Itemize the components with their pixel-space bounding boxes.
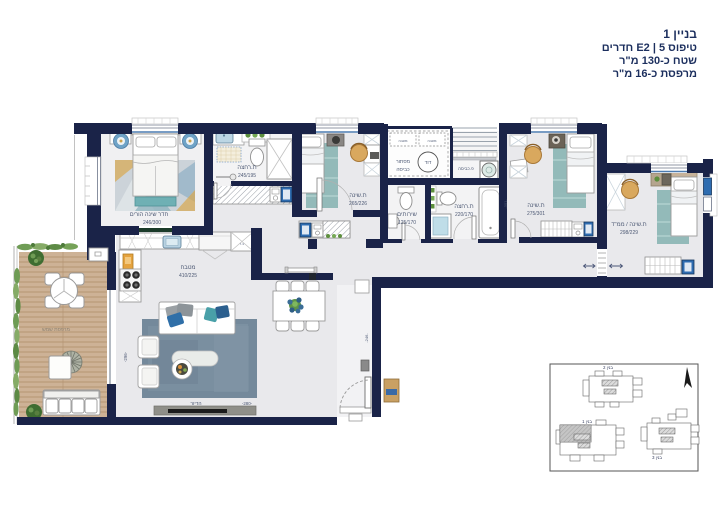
svg-text:טיפוס E2 | 5 חדרים: טיפוס E2 | 5 חדרים [602, 42, 697, 54]
svg-text:חדר שינה הורים: חדר שינה הורים [130, 212, 169, 218]
svg-text:ב.ז: ב.ז [240, 242, 244, 246]
svg-text:246/300: 246/300 [143, 220, 161, 226]
svg-text:הדיור: הדיור [190, 401, 201, 407]
svg-text:-280-: -280- [242, 401, 253, 406]
svg-text:-246-: -246- [364, 333, 369, 343]
svg-text:ת.רחצה: ת.רחצה [237, 165, 256, 171]
svg-text:125/170: 125/170 [398, 220, 416, 226]
svg-text:410/225: 410/225 [179, 273, 197, 279]
svg-text:275/301: 275/301 [527, 211, 545, 217]
svg-text:דוד: דוד [425, 160, 432, 166]
svg-text:מרפסת כ-16 מ"ר: מרפסת כ-16 מ"ר [613, 68, 697, 80]
svg-text:-296-: -296- [123, 351, 128, 362]
svg-text:כביסה: כביסה [396, 167, 410, 173]
svg-text:בנין 2: בנין 2 [603, 365, 613, 370]
svg-text:מרפסת שמש: מרפסת שמש [42, 327, 70, 333]
svg-text:שטח כ-130 מ"ר: שטח כ-130 מ"ר [619, 55, 697, 67]
svg-text:מעבה: מעבה [428, 139, 437, 143]
svg-text:מעבה: מעבה [399, 139, 408, 143]
svg-text:שירותים: שירותים [397, 212, 417, 218]
svg-text:298/229: 298/229 [620, 230, 638, 236]
svg-text:220/170: 220/170 [455, 212, 473, 218]
svg-text:ת.שינה: ת.שינה [349, 193, 366, 199]
svg-text:265/226: 265/226 [349, 201, 367, 207]
svg-text:פ.כביסה: פ.כביסה [458, 166, 474, 171]
svg-text:-301-: -301- [503, 199, 508, 209]
svg-text:ת.שינה / ממ"ד: ת.שינה / ממ"ד [611, 222, 646, 228]
svg-text:בניין 1: בניין 1 [663, 27, 697, 41]
svg-text:245/195: 245/195 [238, 173, 256, 179]
svg-text:מסתור: מסתור [396, 159, 411, 165]
svg-text:בנין 1: בנין 1 [582, 419, 592, 424]
svg-text:ת.שינה: ת.שינה [527, 203, 544, 209]
svg-text:ת.רחצה: ת.רחצה [454, 204, 473, 210]
svg-text:בנין 3: בנין 3 [652, 455, 662, 460]
svg-text:מטבח: מטבח [180, 265, 195, 271]
